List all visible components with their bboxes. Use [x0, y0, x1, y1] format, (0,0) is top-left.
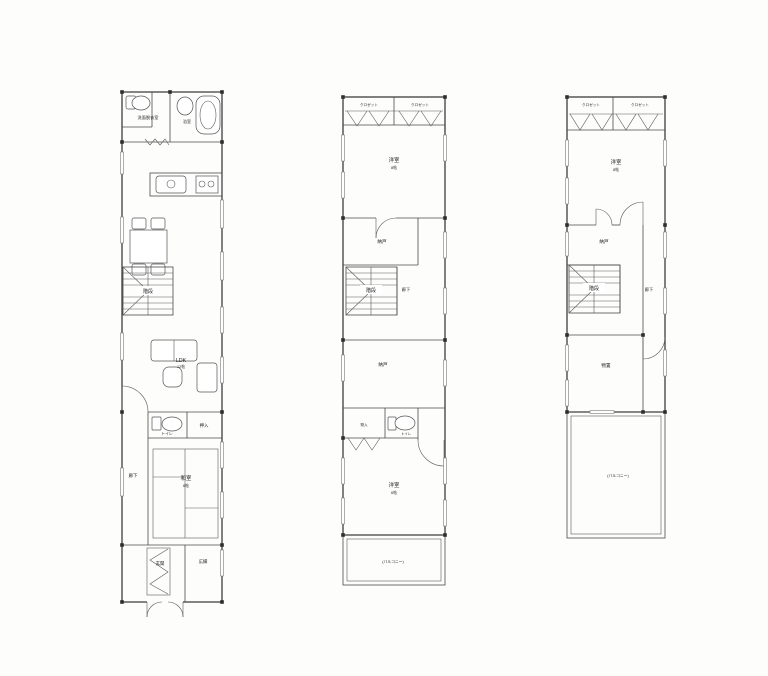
tatami-lines — [153, 449, 218, 538]
balcony-label-3f: (バルコニー) — [607, 473, 629, 478]
room-label-bath: 浴室 — [183, 118, 191, 124]
room-label-toilet-2f: トイレ — [401, 432, 412, 436]
room-label-bedroom-bottom-size-2f: 6帖 — [391, 490, 397, 495]
door-arc-3f-storage — [643, 337, 665, 359]
room-label-entrance: 玄関 — [156, 560, 165, 567]
toilet-icon-2f — [388, 416, 415, 430]
closet-label-3f-left: クロゼット — [582, 102, 600, 107]
door-arc-3f-corridor-top — [620, 202, 643, 225]
closet-doors-2f-lower — [348, 438, 380, 450]
floorplan-1f: 階段 — [120, 90, 224, 617]
dining-table-icon — [130, 218, 167, 275]
bathtub-icon — [177, 96, 220, 134]
closet-label-2f-small: 物入 — [360, 422, 368, 427]
room-labels-2f: クロゼット クロゼット 洋室 8帖 納戸 廊下 納戸 物入 トイレ 洋室 6帖 … — [360, 102, 429, 564]
floorplan-drawing: 階段 — [0, 0, 768, 676]
stairs-3f: 階段 — [569, 265, 620, 313]
room-label-nando-3f: 納戸 — [599, 238, 609, 245]
toilet-icon-1f-top — [126, 96, 150, 110]
balcony-label-2f: (バルコニー) — [382, 559, 404, 564]
room-label-washroom: 洗面脱衣室 — [138, 114, 159, 121]
stairs-1f: 階段 — [123, 267, 173, 315]
room-label-ldk: LDK — [176, 358, 187, 364]
room-label-washitsu-size: 6帖 — [183, 483, 189, 488]
door-arc-2f-bedroom-bottom — [418, 440, 444, 466]
entrance-double-door — [147, 602, 183, 617]
room-label-corridor-1f: 廊下 — [129, 472, 138, 479]
floorplan-3f: 階段 — [565, 95, 667, 538]
door-arc-3f-bedroom — [596, 209, 612, 225]
room-label-bedroom-size-3f: 8帖 — [613, 167, 619, 172]
room-label-stairs-3f: 階段 — [589, 285, 599, 292]
walls-3f — [567, 97, 665, 412]
entrance-step-zigzag — [147, 548, 170, 595]
room-label-corridor-3f: 廊下 — [645, 286, 653, 293]
room-label-corridor-2f: 廊下 — [402, 286, 410, 293]
room-label-hiroen: 広縁 — [199, 558, 208, 565]
room-label-toilet-1f: トイレ — [161, 431, 173, 436]
closet-label-2f-right: クロゼット — [411, 102, 429, 107]
closet-label-3f-right: クロゼット — [631, 102, 649, 107]
room-label-nando-upper-2f: 納戸 — [377, 238, 387, 245]
room-label-bedroom-3f: 洋室 — [611, 158, 622, 166]
closet-label-2f-left: クロゼット — [360, 102, 378, 107]
room-label-closet-1f: 押入 — [200, 422, 209, 429]
room-label-storage-3f: 物置 — [601, 362, 611, 369]
door-arc-2f-bedroom-top — [376, 218, 396, 238]
stairs-2f: 階段 — [346, 267, 397, 315]
floorplan-sheet: 階段 — [0, 0, 768, 676]
room-label-ldk-size: 12帖 — [177, 364, 185, 369]
windows-2f — [342, 135, 447, 526]
room-label-bedroom-top-2f: 洋室 — [389, 156, 400, 164]
room-label-bedroom-bottom-2f: 洋室 — [389, 481, 400, 489]
room-label-stairs-1f: 階段 — [143, 288, 153, 295]
door-arc-ldk — [122, 386, 148, 412]
room-label-washitsu: 和室 — [181, 474, 192, 482]
floorplan-2f: 階段 — [341, 95, 447, 585]
toilet-icon-1f — [152, 417, 182, 431]
posts-3f — [565, 95, 667, 414]
kitchen-counter — [150, 173, 222, 196]
room-label-stairs-2f: 階段 — [366, 287, 376, 294]
room-label-nando-lower-2f: 納戸 — [378, 361, 388, 368]
room-label-bedroom-top-size-2f: 8帖 — [391, 165, 397, 170]
closet-doors-3f-top — [570, 114, 658, 130]
